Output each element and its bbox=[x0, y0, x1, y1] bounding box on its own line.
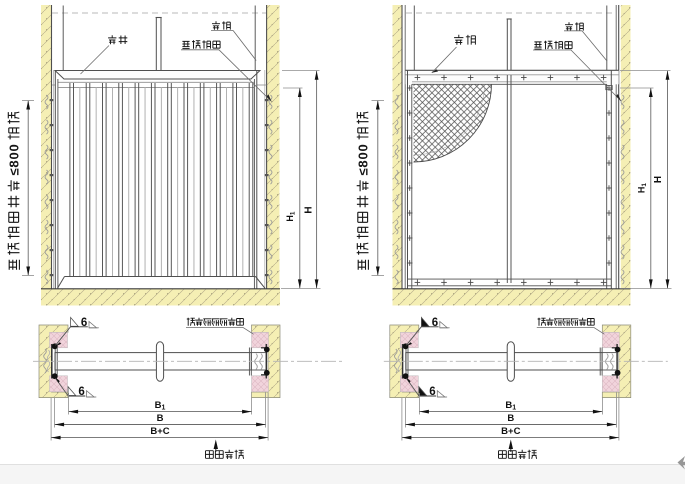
svg-text:B+C: B+C bbox=[501, 426, 520, 437]
svg-text:B+C: B+C bbox=[150, 426, 169, 437]
svg-text:H: H bbox=[304, 206, 315, 213]
svg-text:≤800: ≤800 bbox=[355, 143, 370, 175]
svg-text:H: H bbox=[653, 176, 664, 183]
svg-text:B: B bbox=[157, 413, 164, 424]
svg-text:B: B bbox=[507, 413, 514, 424]
svg-text:≤800: ≤800 bbox=[6, 143, 21, 175]
